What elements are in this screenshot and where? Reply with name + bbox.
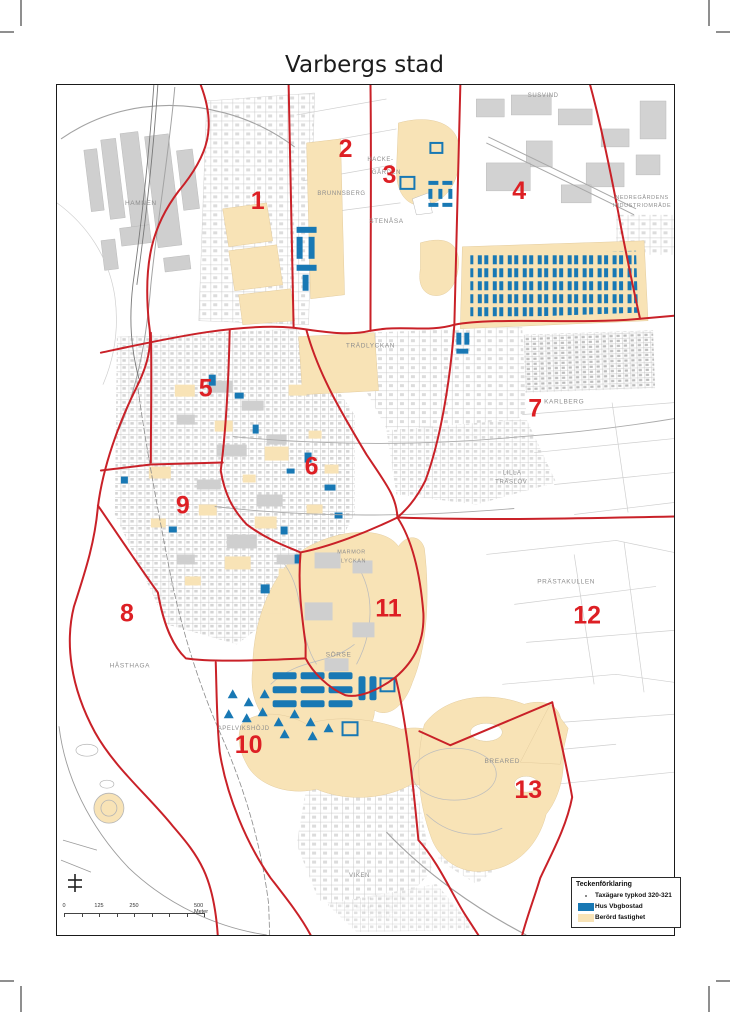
crop-mark	[0, 31, 14, 33]
district-number: 2	[339, 135, 353, 163]
legend-item: Berörd fastighet	[576, 912, 676, 923]
place-label: STENÅSA	[369, 216, 404, 225]
legend-symbol-blue	[578, 903, 594, 911]
scale-tick	[99, 913, 100, 917]
district-number: 9	[176, 491, 190, 519]
scale-label: 125	[94, 903, 103, 909]
crop-mark	[716, 31, 730, 33]
legend-item-label: Taxägare typkod 320-321	[595, 892, 672, 899]
crop-mark	[716, 980, 730, 982]
map-sheet: Varbergs stad	[0, 0, 730, 1012]
scale-tick	[204, 913, 205, 917]
district-number: 7	[528, 395, 542, 423]
place-label: SUSVIND	[528, 93, 559, 99]
place-label: VIKEN	[349, 873, 370, 879]
scale-tick	[117, 913, 118, 917]
place-label: INDUSTRIOMRÅDE	[613, 202, 671, 209]
district-number: 10	[235, 731, 263, 759]
place-label: NEDREGÅRDENS	[615, 194, 669, 201]
place-label: LILLA	[503, 471, 522, 477]
round-feature	[94, 793, 124, 823]
legend-title: Teckenförklaring	[576, 881, 676, 888]
place-label: LYCKAN	[341, 558, 366, 564]
place-label: TRÄSLÖV	[495, 479, 527, 486]
crop-mark	[0, 980, 14, 982]
scale-bar: 0125250500 Meter	[64, 903, 224, 925]
legend-item-label: Hus Vbgbostad	[595, 903, 643, 910]
city-map: HAMNENSUSVINDBRUNNSBERGHACKE-GÅRDENSTENÅ…	[57, 85, 674, 935]
crop-mark	[708, 0, 710, 26]
north-arrow-icon	[65, 873, 85, 900]
place-label: PRÄSTAKULLEN	[537, 577, 595, 585]
map-frame: HAMNENSUSVINDBRUNNSBERGHACKE-GÅRDENSTENÅ…	[56, 84, 675, 936]
place-label: TRÄDLYCKAN	[346, 342, 395, 350]
place-label: HAMNEN	[125, 200, 157, 207]
district-number: 12	[573, 601, 601, 629]
district-number: 8	[120, 599, 134, 627]
crop-mark	[20, 986, 22, 1012]
scale-label: 0	[62, 903, 65, 909]
legend: Teckenförklaring Taxägare typkod 320-321…	[571, 877, 681, 928]
district-number: 6	[305, 453, 319, 481]
scale-tick	[64, 913, 65, 917]
place-label: HÅSTHAGA	[110, 660, 151, 669]
crop-mark	[708, 986, 710, 1012]
scale-label: 250	[129, 903, 138, 909]
page-title: Varbergs stad	[56, 52, 673, 78]
place-label: BREARED	[485, 758, 521, 765]
legend-item: Hus Vbgbostad	[576, 901, 676, 912]
legend-item-label: Berörd fastighet	[595, 914, 645, 921]
ponds	[76, 744, 114, 788]
place-label: BRUNNSBERG	[317, 191, 365, 197]
scale-tick	[187, 913, 188, 917]
district-number: 5	[199, 375, 213, 403]
place-label: KARLBERG	[544, 399, 584, 406]
district-number: 3	[383, 161, 397, 189]
scale-tick	[82, 913, 83, 917]
legend-item: Taxägare typkod 320-321	[576, 890, 676, 901]
legend-symbol-dot	[585, 895, 587, 897]
scale-tick	[169, 913, 170, 917]
crop-mark	[20, 0, 22, 26]
industry-blocks-north	[476, 95, 666, 203]
place-label: SÖRSE	[326, 650, 352, 658]
scale-tick	[134, 913, 135, 917]
legend-symbol-beige	[578, 914, 594, 922]
place-label: MARMOR	[337, 549, 366, 555]
district-number: 1	[251, 187, 265, 215]
district-number: 11	[375, 594, 401, 622]
district-number: 13	[514, 776, 542, 804]
scale-tick	[152, 913, 153, 917]
district-number: 4	[512, 177, 526, 205]
